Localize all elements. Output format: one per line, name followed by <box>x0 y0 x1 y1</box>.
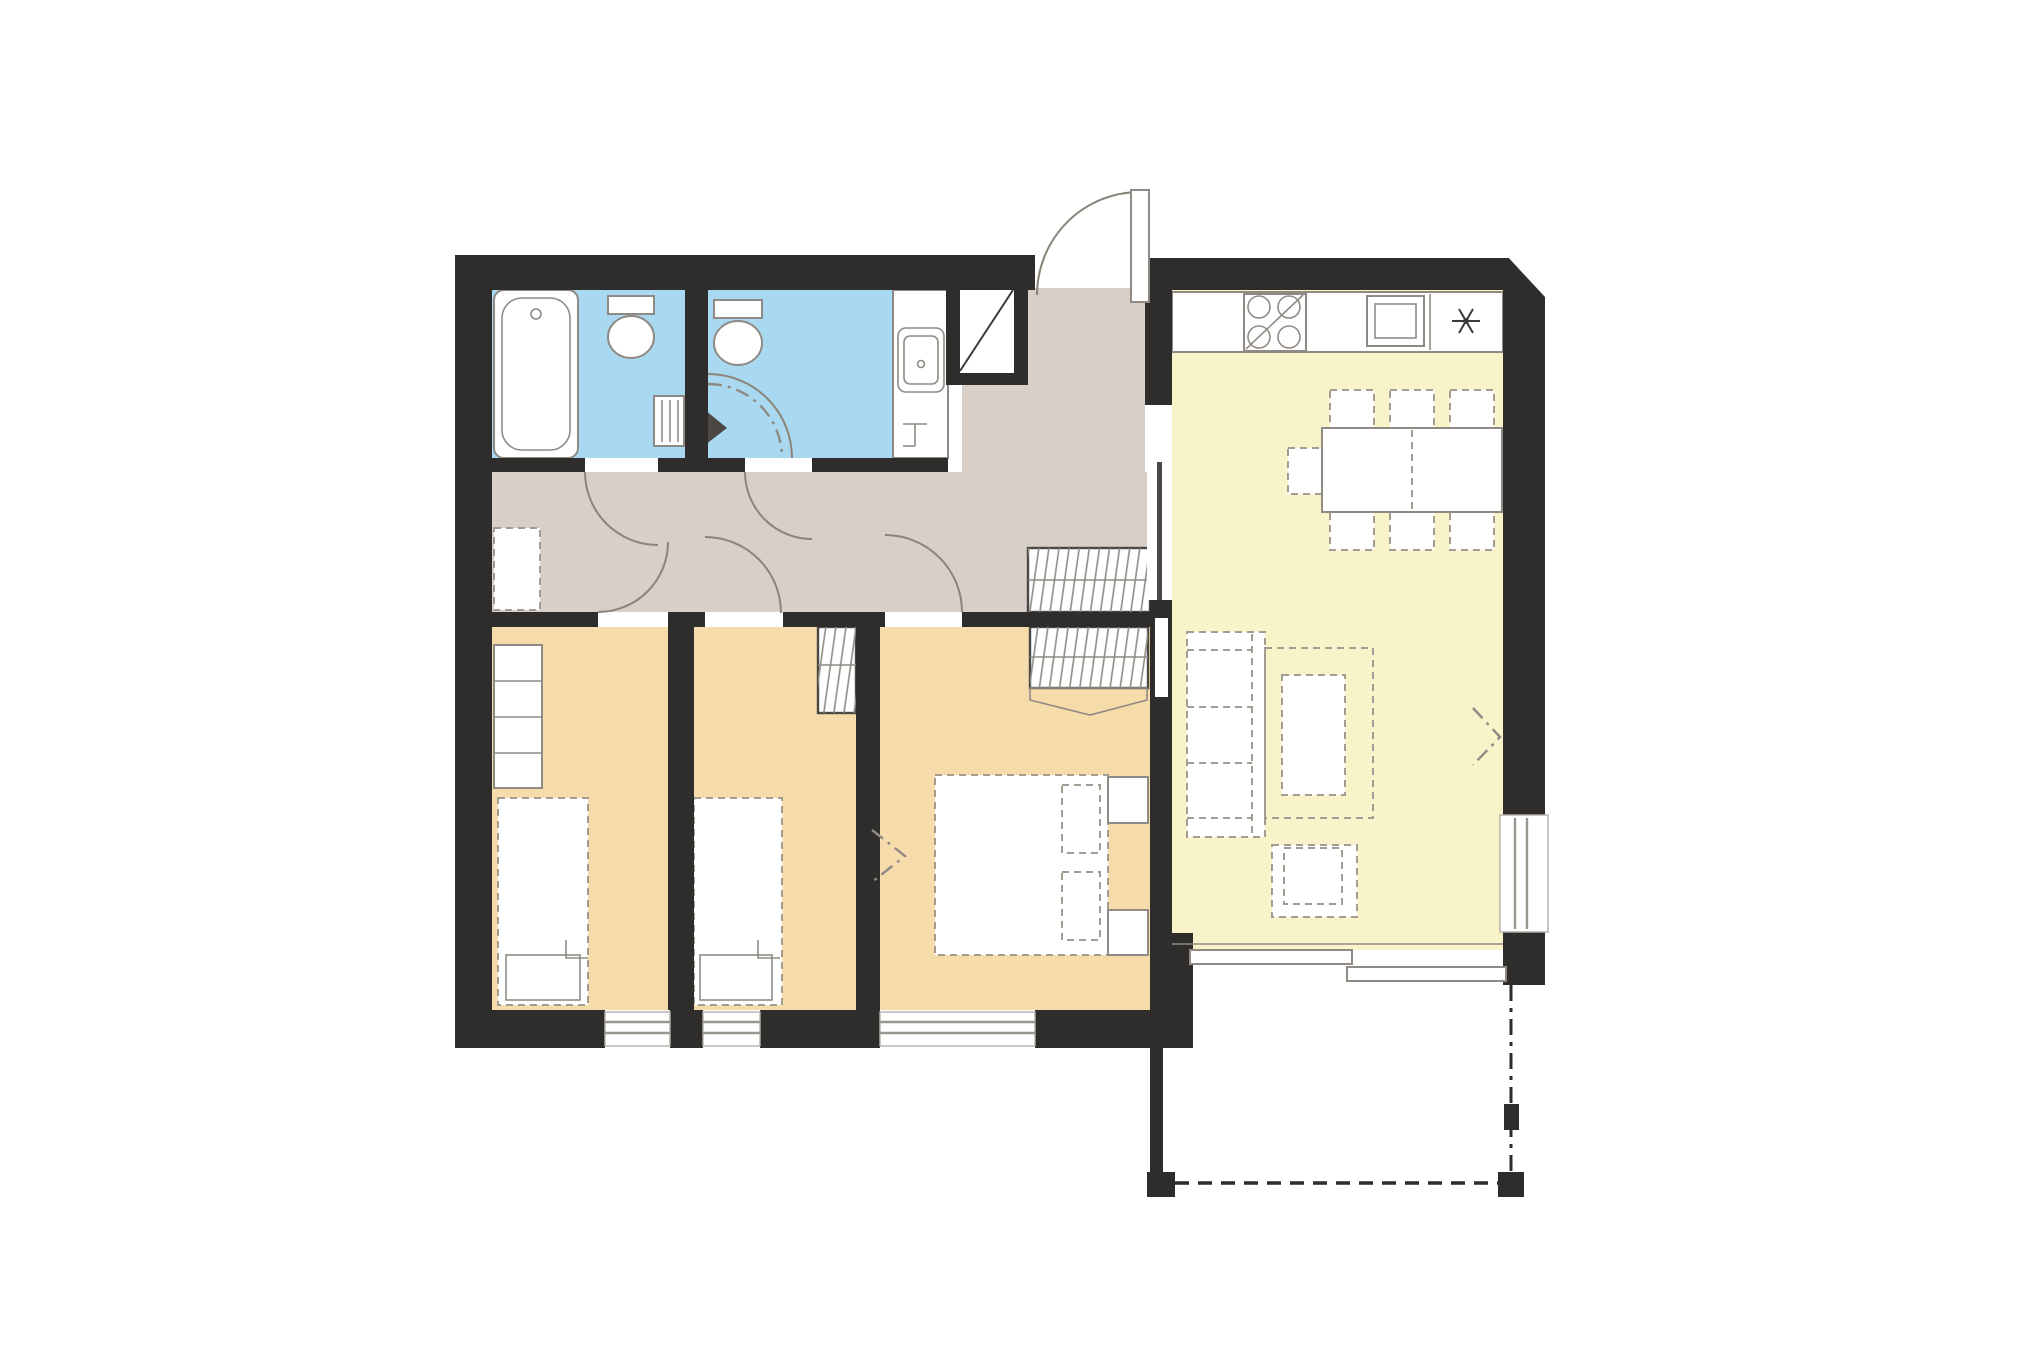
sliding-panel <box>1190 950 1352 964</box>
hall-storage-niche <box>494 528 540 610</box>
wall-between-bathrooms <box>685 288 708 458</box>
wall-shaft <box>946 373 1028 385</box>
floor-plan-drawing <box>0 0 2043 1365</box>
wall-kitchen-top <box>1145 258 1545 290</box>
wall-hall-bedrooms <box>668 612 705 627</box>
wall-left <box>455 255 492 1048</box>
toilet-icon <box>714 300 762 365</box>
dining-chair <box>1288 448 1324 494</box>
washbasin-counter <box>893 290 948 458</box>
toilet-icon <box>608 296 654 358</box>
wall-terrace-left <box>1150 1048 1163 1180</box>
wall-bathroom-front <box>658 458 745 472</box>
wall-top-left-block <box>455 255 1035 290</box>
wall-kitchen-right <box>1503 290 1545 818</box>
wall-bottom <box>760 1010 880 1048</box>
single-bed-2 <box>694 798 782 1005</box>
floor-plan-canvas <box>0 0 2043 1365</box>
pillow <box>1062 872 1100 940</box>
wall-bedroom-divider <box>856 627 880 1010</box>
bedroom-1-wardrobe <box>494 645 542 788</box>
dining-chair <box>1450 512 1494 550</box>
kitchen-counter-group <box>1172 292 1503 352</box>
dining-chair <box>1450 390 1494 428</box>
dining-chair <box>1330 390 1374 428</box>
oven-icon <box>1367 296 1424 346</box>
wall-shaft <box>946 288 960 385</box>
nightstand <box>1108 777 1148 823</box>
sliding-panel <box>1347 967 1506 981</box>
towel-radiator-icon <box>654 396 684 446</box>
installation-shaft <box>960 288 1014 373</box>
hob-icon <box>1244 294 1306 351</box>
hall-coat-closet <box>1028 548 1150 612</box>
sofa <box>1187 632 1265 837</box>
coffee-table <box>1282 675 1345 795</box>
floor-entrance-vestibule <box>1028 288 1145 472</box>
wall-master-corner <box>1150 933 1193 1048</box>
wall-bedroom-divider <box>668 627 694 1010</box>
window-master-bedroom <box>880 1012 1035 1046</box>
armchair <box>1272 845 1357 917</box>
wall-bathroom-front <box>492 458 585 472</box>
single-bed-1 <box>498 798 588 1005</box>
bedroom-2-wardrobe <box>818 627 856 713</box>
bathtub-icon <box>494 290 578 458</box>
wall-shaft <box>1014 288 1028 385</box>
entrance-door-leaf <box>1131 190 1149 302</box>
window-bedroom-1 <box>605 1012 670 1046</box>
nightstand <box>1108 910 1148 955</box>
floor-hall-nook <box>962 385 1028 472</box>
wall-bathroom-front <box>812 458 948 472</box>
wall-hall-bedrooms <box>492 612 598 627</box>
pocket-door-leaf <box>1157 462 1162 600</box>
wall-glazed-slot <box>1155 618 1168 697</box>
dining-chair <box>1390 512 1434 550</box>
terrace-post <box>1147 1172 1175 1197</box>
wall-hall-bedrooms <box>962 612 1150 627</box>
terrace-post <box>1498 1172 1524 1197</box>
wall-kitchen-right <box>1503 930 1545 985</box>
pillow <box>1062 785 1100 853</box>
terrace-boundary <box>1175 985 1511 1192</box>
wall-hall-bedrooms <box>783 612 885 627</box>
entrance-door <box>1037 190 1149 302</box>
wall-bottom <box>455 1010 605 1048</box>
window-living-right <box>1500 815 1548 932</box>
window-bedroom-2 <box>703 1012 760 1046</box>
dining-chair <box>1330 512 1374 550</box>
wall-bottom <box>670 1010 703 1048</box>
dining-chair <box>1390 390 1434 428</box>
